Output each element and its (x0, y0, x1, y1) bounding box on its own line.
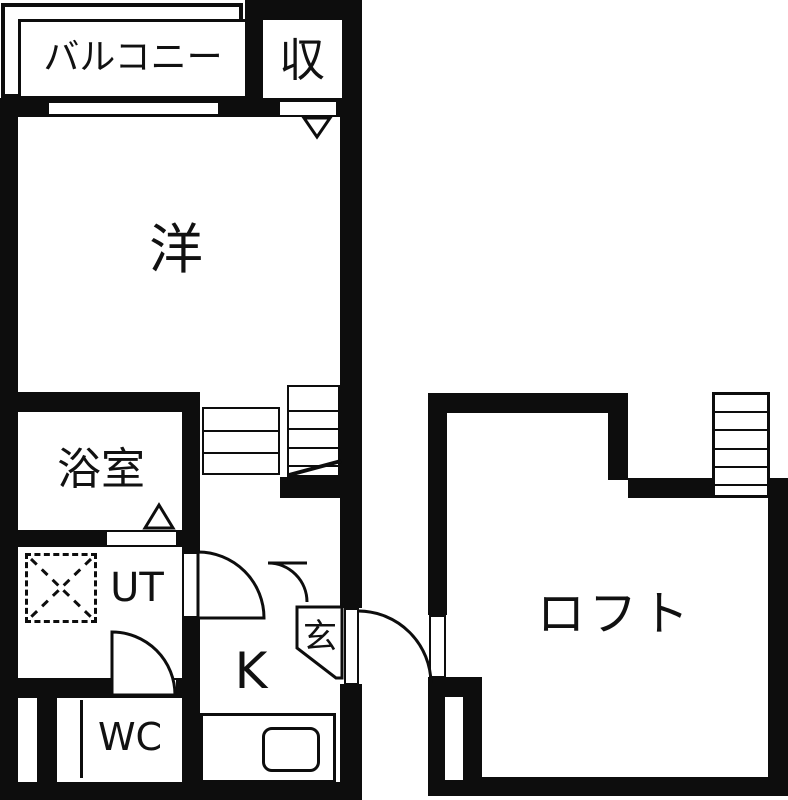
wall (182, 618, 200, 782)
window (47, 101, 220, 116)
wall (340, 0, 362, 608)
storage-opening-marker (304, 118, 330, 137)
loft-wall (428, 393, 447, 615)
toilet-partition-line (80, 700, 83, 778)
hall-door-arc (268, 563, 307, 602)
balcony-label: バルコニー (43, 40, 222, 76)
floor-plan: バルコニー 収 洋 浴室 UT WC K 玄 ロフト (0, 0, 788, 800)
utility-label: UT (110, 568, 164, 608)
loft-wall (428, 393, 628, 413)
bathroom-opening-marker (145, 505, 173, 528)
washing-machine-pan-icon (25, 553, 97, 623)
loft-stairs (712, 392, 770, 498)
wall (340, 684, 362, 784)
wall (0, 98, 18, 800)
wall (280, 477, 342, 498)
utility-door-arc (198, 552, 264, 618)
loft-wall (768, 478, 788, 796)
toilet-door-leaf (112, 678, 178, 695)
stairs-lower-flight (202, 407, 280, 475)
bathroom-label: 浴室 (57, 448, 145, 492)
storage-opening (278, 100, 338, 117)
loft-label: ロフト (537, 590, 693, 638)
entrance-door-leaf (344, 608, 359, 685)
loft-wall (628, 478, 713, 498)
kitchen-label: K (235, 646, 268, 696)
loft-wall (428, 777, 788, 796)
toilet-label: WC (98, 718, 162, 756)
wall (182, 392, 200, 552)
loft-wall-opening (429, 615, 446, 678)
wall (37, 698, 57, 782)
kitchen-sink (262, 727, 320, 772)
loft-wall (608, 413, 628, 480)
entrance-label: 玄 (303, 620, 337, 654)
western-room-label: 洋 (149, 223, 203, 277)
entrance-door-arc (359, 611, 431, 683)
wall (0, 782, 362, 800)
storage-label: 収 (279, 37, 325, 83)
bathroom-door-opening (105, 530, 178, 547)
wall (18, 392, 200, 412)
utility-door-leaf (182, 552, 199, 618)
loft-wall-slot (445, 697, 463, 780)
stairs-upper-flight (287, 385, 340, 477)
